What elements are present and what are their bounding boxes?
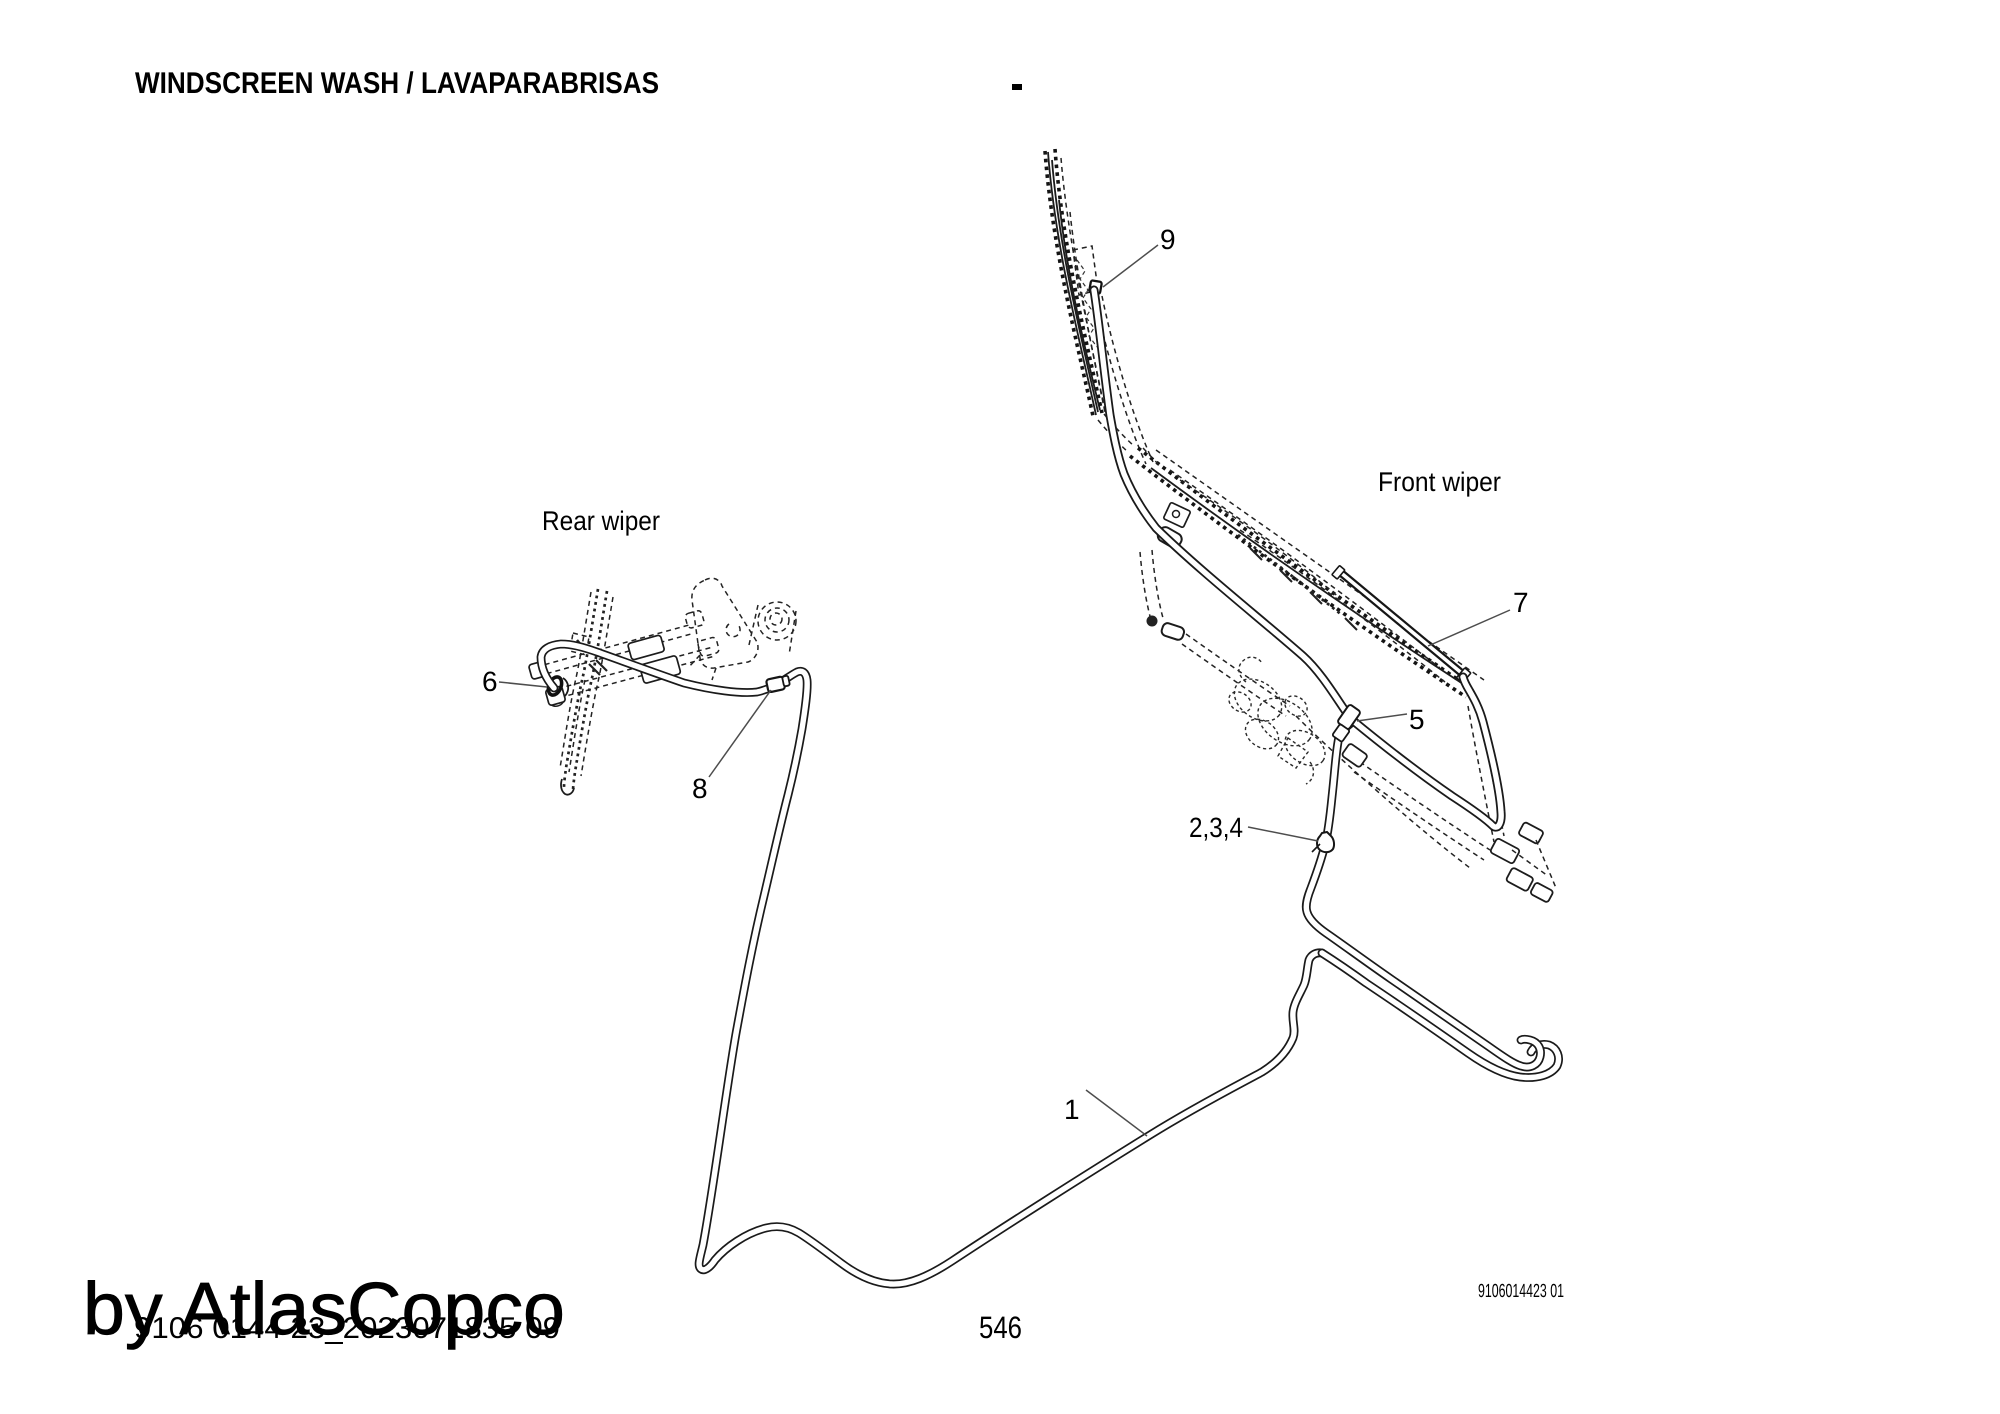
svg-text:8: 8 [692,773,708,804]
svg-text:9106014423 01: 9106014423 01 [1478,1281,1564,1302]
svg-text:Front wiper: Front wiper [1378,467,1501,497]
svg-text:7: 7 [1513,587,1529,618]
svg-text:546: 546 [979,1310,1022,1345]
svg-text:6: 6 [482,666,498,697]
svg-text:9: 9 [1160,224,1176,255]
svg-text:Rear wiper: Rear wiper [542,506,660,536]
svg-text:2,3,4: 2,3,4 [1189,812,1243,843]
svg-text:by AtlasCopco: by AtlasCopco [83,1267,565,1350]
svg-text:1: 1 [1064,1094,1080,1125]
svg-text:5: 5 [1409,704,1425,735]
svg-text:WINDSCREEN WASH / LAVAPARABRIS: WINDSCREEN WASH / LAVAPARABRISAS [135,67,659,100]
